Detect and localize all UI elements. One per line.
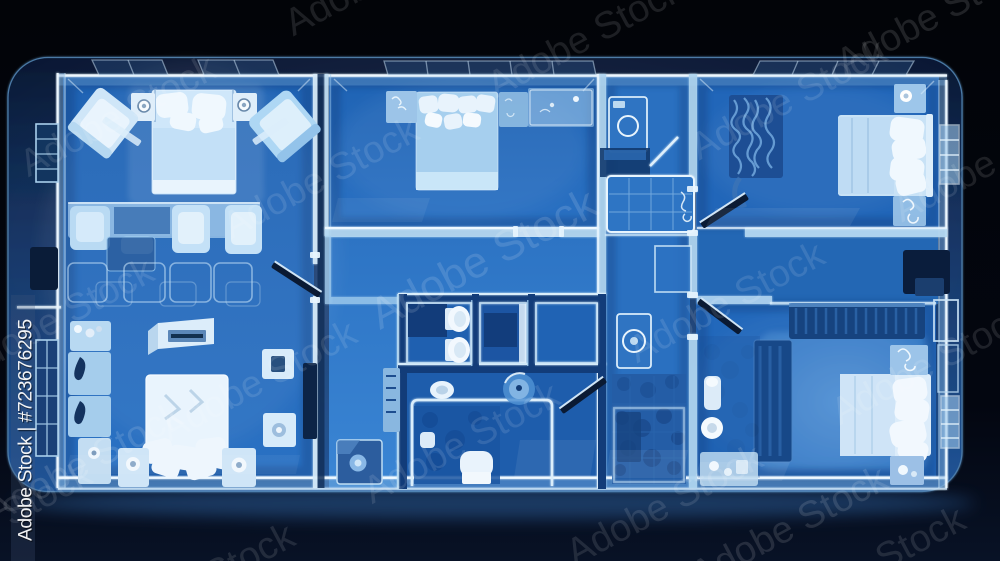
svg-text:Adobe Stock | #723676295: Adobe Stock | #723676295 [14, 319, 36, 541]
